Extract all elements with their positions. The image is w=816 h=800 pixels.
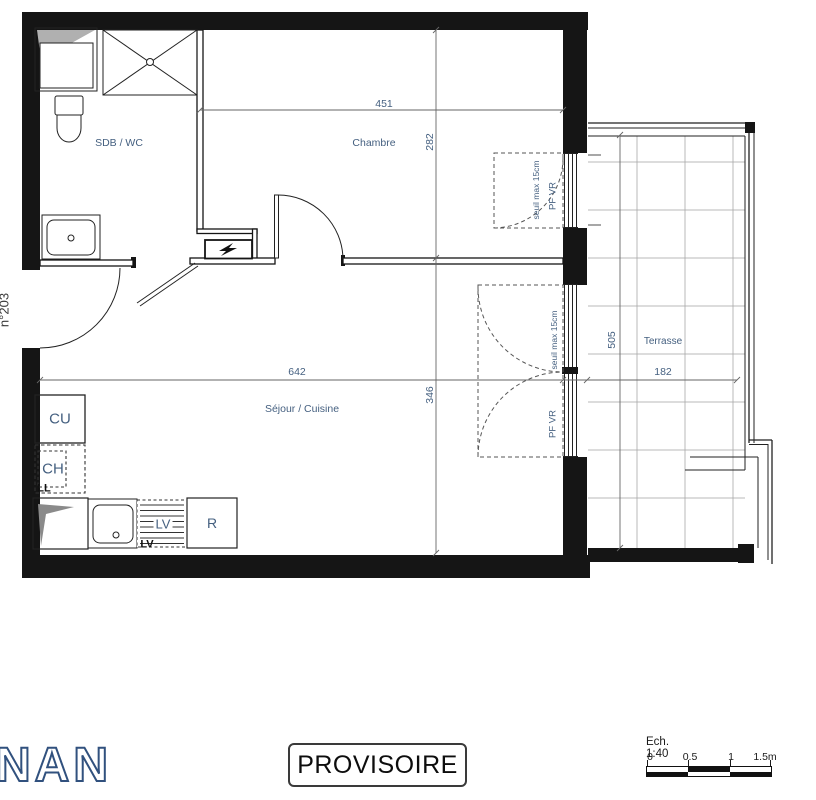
scale-bar-graphic [646, 766, 772, 777]
agency-logo: NAN [0, 735, 106, 793]
scale-tick-15: 1.5m [753, 751, 776, 763]
scale-tick-05: 0.5 [683, 751, 698, 763]
bedroom-window-threshold-label: seuil max 15cm [532, 160, 541, 219]
room-label-bathroom: SDB / WC [95, 138, 143, 149]
floor-plan: SDB / WC Chambre Séjour / Cuisine Terras… [0, 0, 816, 800]
room-label-bedroom: Chambre [352, 138, 395, 149]
dim-terrace-depth: 505 [607, 331, 618, 349]
terrace-step [685, 440, 772, 564]
floor-plan-drawing [0, 0, 816, 800]
hob-label: CU [49, 412, 71, 427]
entrance-door [40, 268, 120, 348]
vanity-unit [35, 28, 97, 91]
water-heater-label: CH [42, 462, 64, 477]
kitchen-corner-unit [33, 498, 88, 549]
room-label-terrace: Terrasse [644, 337, 682, 347]
agency-logo-text: NAN [0, 739, 106, 792]
dim-bedroom-depth: 282 [425, 133, 436, 151]
provisional-stamp-text: PROVISOIRE [297, 751, 458, 780]
dim-living-width: 642 [288, 367, 306, 378]
washer-label: LL [37, 484, 50, 495]
living-window-threshold-label: seuil max 15cm [550, 310, 559, 369]
dim-terrace-width: 182 [654, 367, 672, 378]
kitchen-sink [88, 499, 137, 548]
toilet [55, 96, 83, 142]
living-window [562, 284, 578, 457]
fridge-label: R [207, 516, 217, 530]
scale-tick-1: 1 [728, 751, 734, 763]
provisional-stamp: PROVISOIRE [288, 743, 467, 787]
living-window-type-label: PF VR [548, 410, 558, 438]
shower-tray [103, 30, 197, 95]
dim-living-depth: 346 [425, 386, 436, 404]
electrical-panel [205, 240, 252, 259]
apartment-number: n°203 [0, 293, 11, 327]
bedroom-door [275, 195, 344, 259]
dim-bedroom-width: 451 [375, 99, 393, 110]
dishwasher-mark-label: LV [140, 540, 153, 551]
bathroom-sink [42, 215, 100, 259]
bedroom-window-type-label: PF VR [548, 182, 558, 210]
dishwasher-label: LV [154, 518, 173, 531]
bathroom-door [137, 263, 198, 306]
bedroom-window [563, 153, 601, 228]
terrace-border [588, 123, 755, 470]
room-label-living: Séjour / Cuisine [265, 404, 339, 415]
